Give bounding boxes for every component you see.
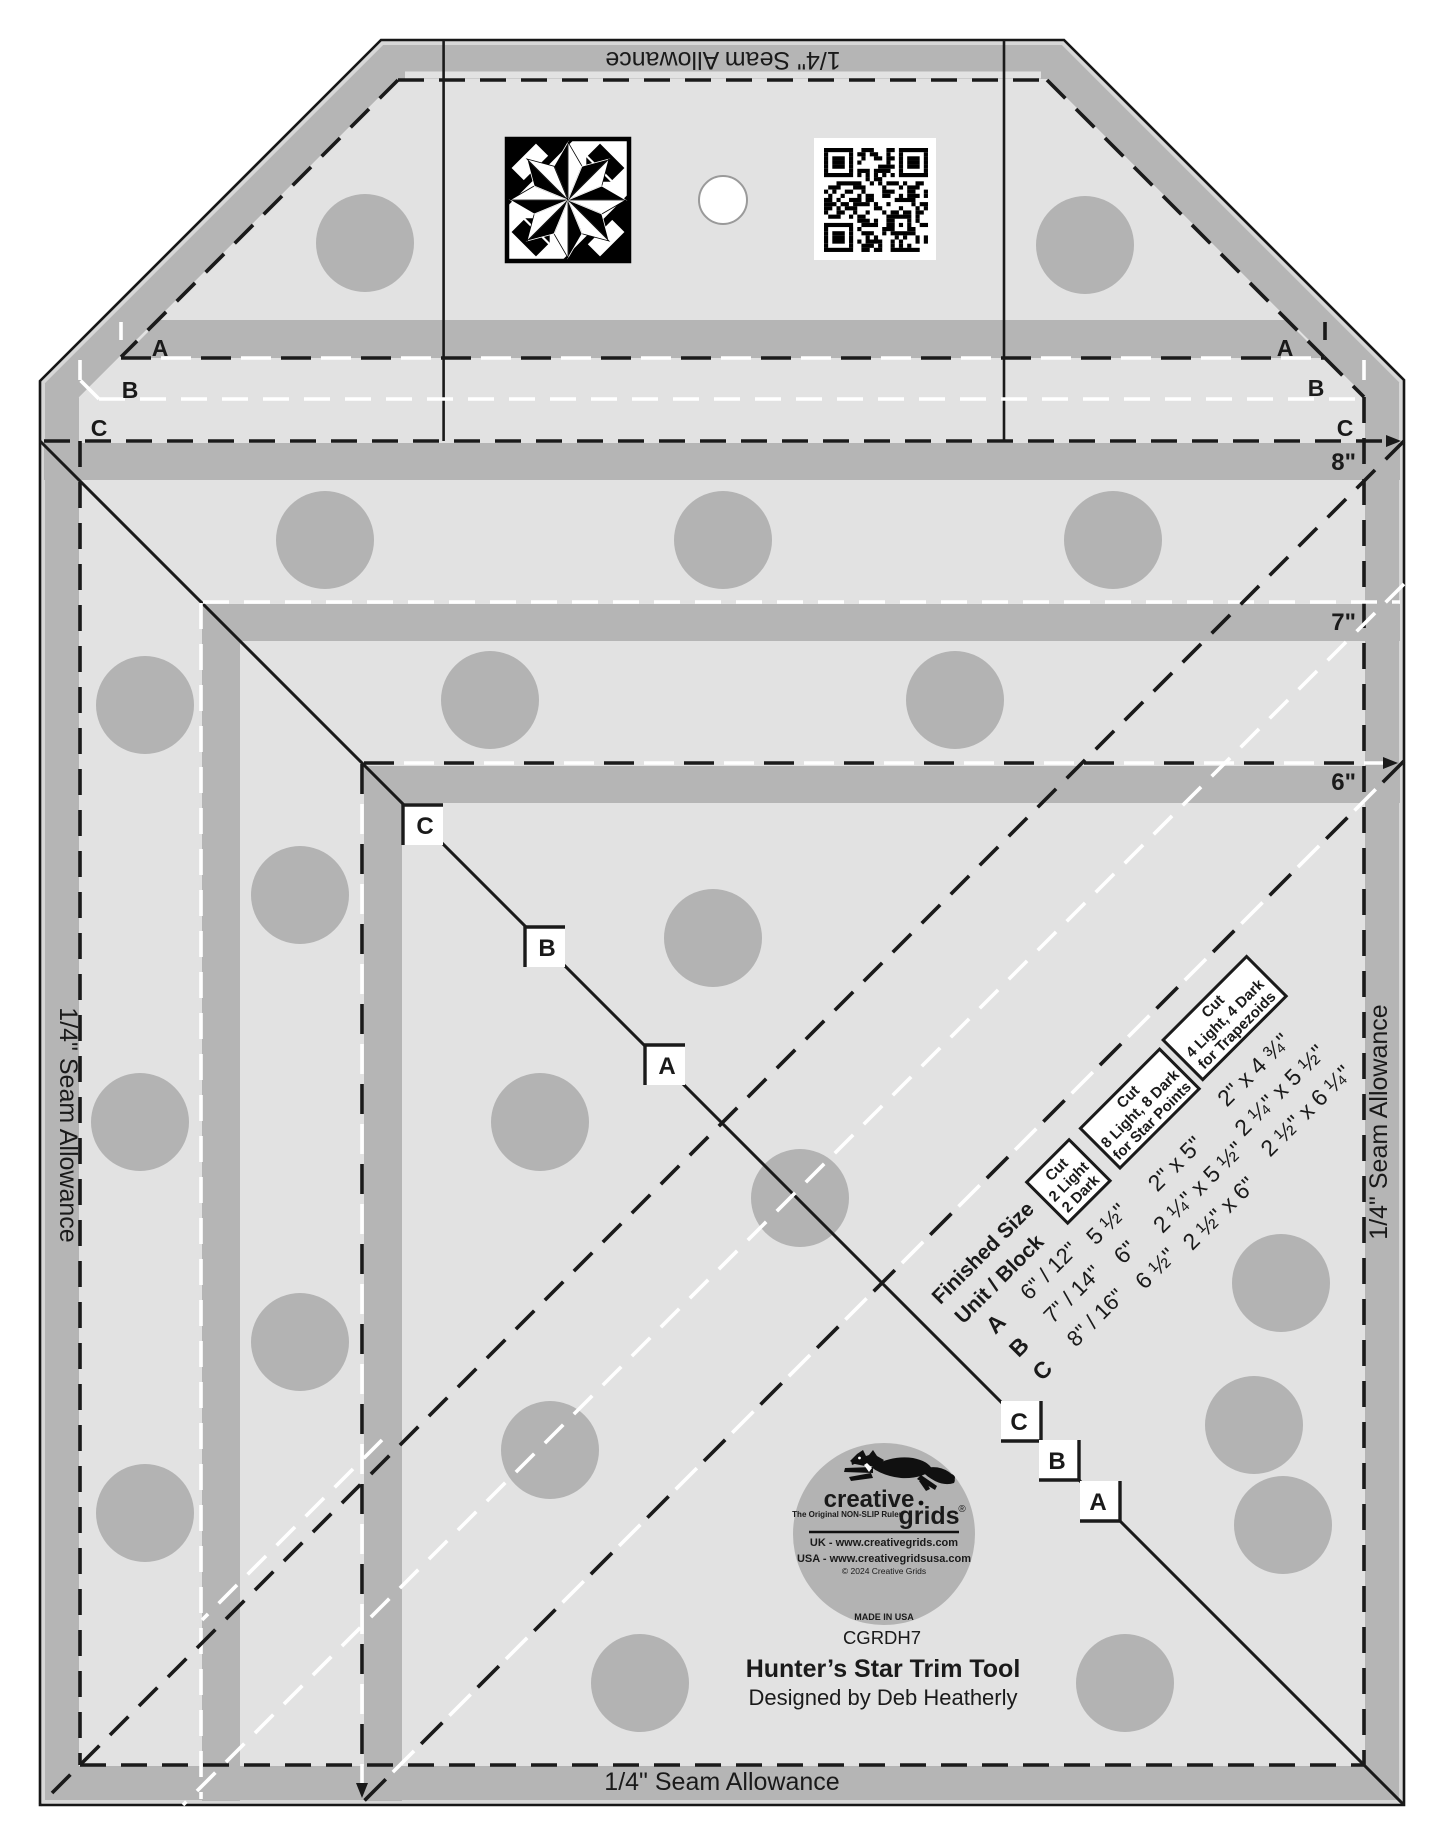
- svg-text:8": 8": [1331, 449, 1356, 476]
- svg-text:CGRDH7: CGRDH7: [843, 1627, 921, 1648]
- svg-text:© 2024 Creative Grids: © 2024 Creative Grids: [842, 1566, 926, 1576]
- svg-text:C: C: [91, 415, 108, 441]
- svg-text:6": 6": [1331, 769, 1356, 796]
- svg-text:A: A: [152, 335, 169, 361]
- svg-text:B: B: [122, 377, 139, 403]
- svg-text:Hunter’s Star Trim Tool: Hunter’s Star Trim Tool: [746, 1655, 1021, 1683]
- svg-text:Designed by Deb Heatherly: Designed by Deb Heatherly: [748, 1685, 1017, 1710]
- svg-text:USA - www.creativegridsusa.com: USA - www.creativegridsusa.com: [797, 1553, 971, 1565]
- svg-text:A: A: [658, 1053, 675, 1080]
- svg-text:B: B: [1048, 1448, 1065, 1475]
- svg-text:1/4" Seam Allowance: 1/4" Seam Allowance: [54, 1007, 82, 1242]
- svg-text:A: A: [1277, 335, 1294, 361]
- svg-text:C: C: [416, 813, 433, 840]
- svg-text:C: C: [1010, 1409, 1027, 1436]
- svg-text:The Original NON-SLIP Ruler: The Original NON-SLIP Ruler: [792, 1510, 902, 1519]
- svg-text:1/4" Seam Allowance: 1/4" Seam Allowance: [605, 46, 840, 74]
- svg-text:B: B: [538, 935, 555, 962]
- svg-text:1/4" Seam Allowance: 1/4" Seam Allowance: [1365, 1004, 1393, 1239]
- svg-text:®: ®: [958, 1504, 966, 1515]
- svg-text:7": 7": [1331, 609, 1356, 636]
- svg-text:B: B: [1308, 375, 1325, 401]
- svg-text:UK - www.creativegrids.com: UK - www.creativegrids.com: [810, 1537, 958, 1549]
- svg-text:1/4" Seam Allowance: 1/4" Seam Allowance: [604, 1768, 839, 1796]
- svg-text:grids: grids: [898, 1502, 959, 1530]
- svg-text:MADE IN USA: MADE IN USA: [854, 1612, 914, 1622]
- svg-text:A: A: [1089, 1489, 1106, 1516]
- svg-text:C: C: [1337, 415, 1354, 441]
